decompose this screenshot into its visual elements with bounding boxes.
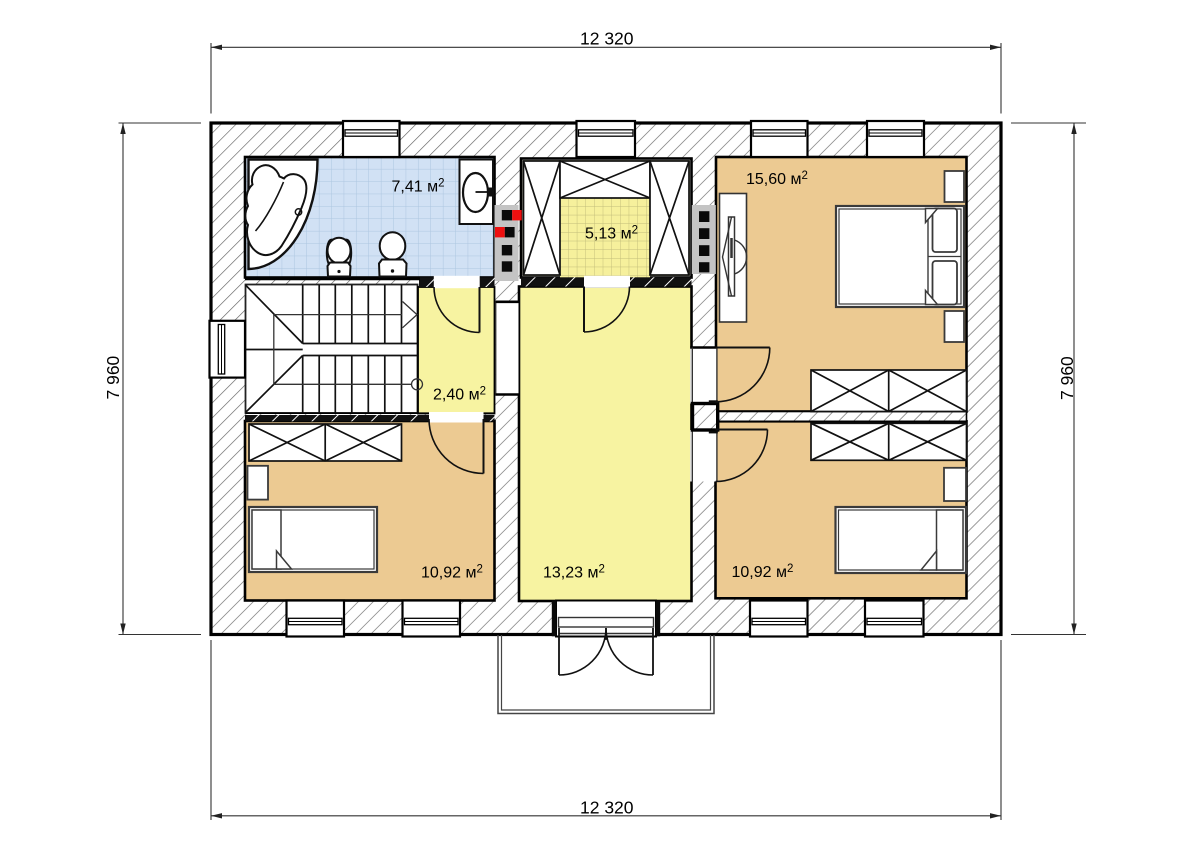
svg-text:10,92 м2: 10,92 м2 (732, 563, 794, 581)
svg-text:12 320: 12 320 (580, 798, 634, 818)
svg-text:7,41 м2: 7,41 м2 (392, 178, 445, 196)
svg-text:7 960: 7 960 (103, 355, 123, 399)
svg-text:13,23 м2: 13,23 м2 (543, 564, 605, 582)
svg-text:5,13 м2: 5,13 м2 (585, 225, 638, 243)
svg-text:7 960: 7 960 (1057, 356, 1077, 400)
svg-text:10,92 м2: 10,92 м2 (421, 564, 483, 582)
svg-text:2,40 м2: 2,40 м2 (433, 386, 486, 404)
svg-text:12 320: 12 320 (580, 29, 634, 49)
svg-text:15,60 м2: 15,60 м2 (746, 170, 808, 188)
